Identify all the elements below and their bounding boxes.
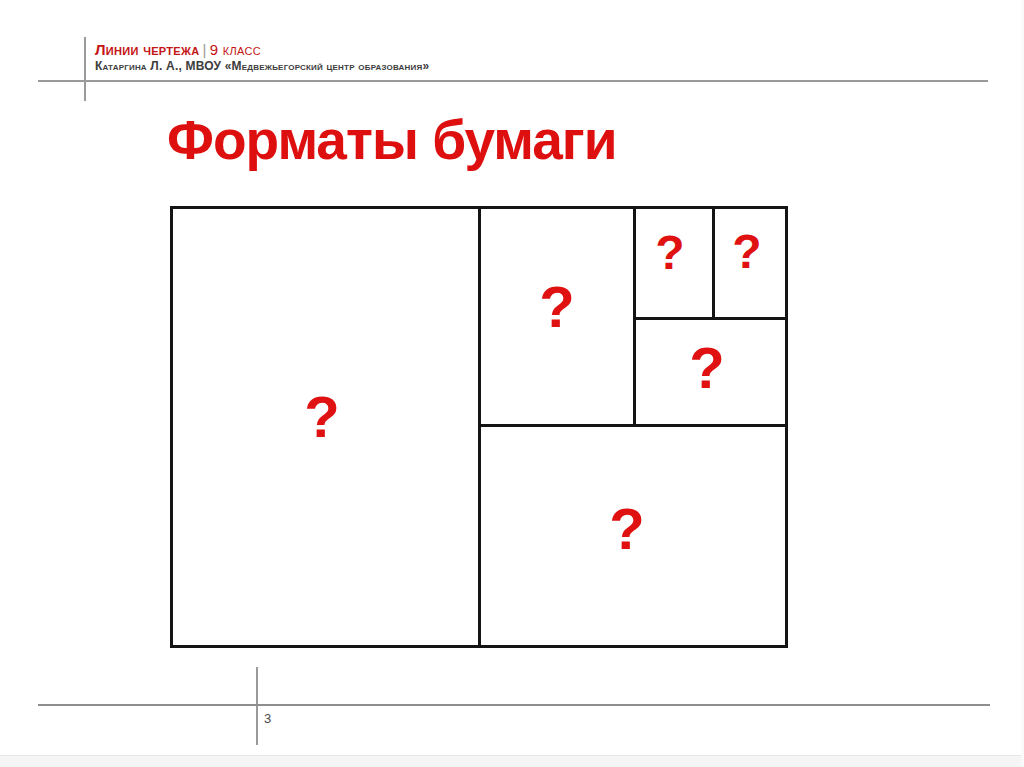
slide-title: Форматы бумаги: [167, 113, 617, 168]
question-mark-a4: ?: [689, 339, 724, 397]
diagram-divider-a1: [478, 209, 481, 645]
question-mark-a2: ?: [609, 500, 644, 558]
page-number: 3: [264, 711, 271, 726]
diagram-divider-a4: [633, 317, 785, 320]
presentation-slide: Линии чертежа|9 класс Катаргина Л. А., М…: [0, 0, 1024, 767]
question-mark-a1: ?: [304, 388, 339, 446]
question-mark-a5-right: ?: [732, 228, 761, 276]
footer-vertical-tick: [256, 667, 258, 745]
header-horizontal-rule: [38, 80, 988, 82]
author-line: Катаргина Л. А., МВОУ «Медвежьегорский ц…: [95, 60, 429, 73]
diagram-divider-a5: [712, 209, 715, 320]
diagram-divider-a2: [478, 424, 785, 427]
footer-horizontal-rule: [38, 704, 990, 706]
question-mark-a5-left: ?: [655, 229, 684, 277]
paper-formats-diagram: ? ? ? ? ? ?: [170, 206, 788, 648]
course-line: Линии чертежа|9 класс: [95, 42, 429, 59]
grade-label: 9 класс: [210, 41, 261, 58]
header-separator: |: [199, 41, 209, 58]
course-title: Линии чертежа: [95, 41, 199, 58]
slide-header: Линии чертежа|9 класс Катаргина Л. А., М…: [95, 42, 429, 73]
slide-bottom-edge: [0, 755, 1024, 767]
header-vertical-tick: [84, 37, 86, 101]
question-mark-a3: ?: [539, 278, 574, 336]
